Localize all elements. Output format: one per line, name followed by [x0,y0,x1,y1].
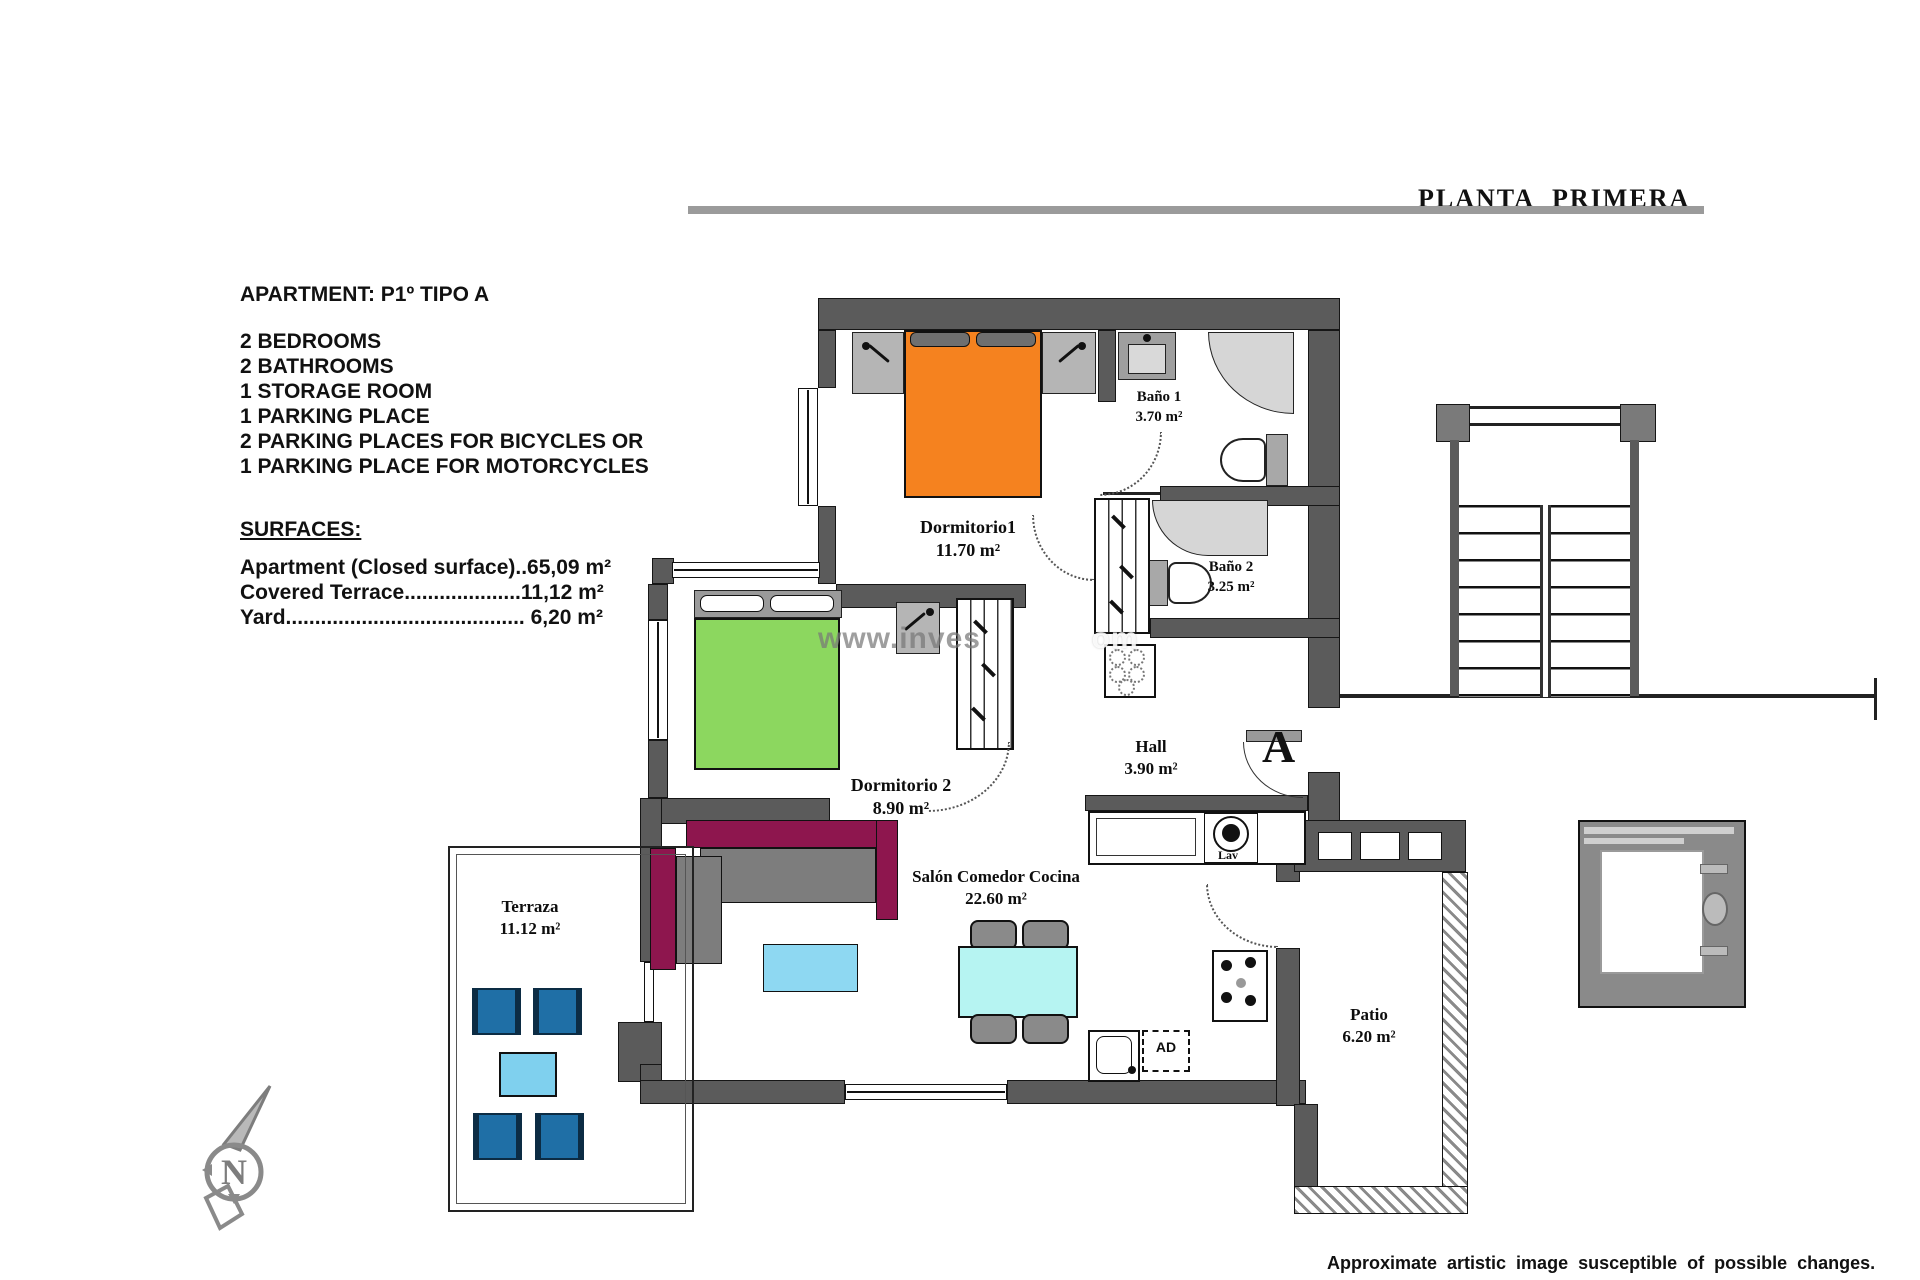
room-area: 8.90 m² [873,798,929,818]
watermark-left: www.inves [818,622,981,655]
surface-item: Apartment (Closed surface)..65,09 m² [240,556,611,581]
room-label-patio: Patio 6.20 m² [1342,1004,1395,1048]
feature-item: 2 BEDROOMS [240,330,649,355]
feature-item: 2 BATHROOMS [240,355,649,380]
room-name: Baño 1 [1137,389,1182,405]
wall-segment [1007,1080,1306,1104]
toilet-tank [1266,434,1288,486]
disclaimer-text: Approximate artistic image susceptible o… [1327,1253,1875,1274]
wall-segment [648,740,668,798]
wall-segment [1294,1104,1318,1188]
toilet-bowl [1168,562,1212,604]
storage-contents [1118,679,1135,696]
surface-item: Yard....................................… [240,606,611,631]
sofa-arm [876,820,898,920]
terrace-chair [472,988,521,1035]
pillow [976,332,1036,347]
stair-flight [1459,505,1540,697]
stove-center [1236,978,1246,988]
coffee-table [763,944,858,992]
wall-segment [652,558,674,584]
wall-segment [1276,948,1300,1106]
ad-label: AD [1156,1038,1176,1056]
wall-segment [818,506,836,584]
lamp-icon [926,608,934,616]
counter-inner-line [1096,818,1196,856]
room-label-salon: Salón Comedor Cocina 22.60 m² [912,866,1080,910]
surface-item: Covered Terrace....................11,12… [240,581,611,606]
stair-divider [1540,505,1551,697]
surfaces-list: Apartment (Closed surface)..65,09 m² Cov… [240,556,611,631]
elevator-cab [1600,850,1704,974]
room-name: Salón Comedor Cocina [912,867,1080,886]
toilet-bowl [1220,438,1266,482]
door-arc-patio [1206,884,1278,948]
wall-segment [1085,795,1308,811]
window-mullion [847,1091,1005,1093]
room-name: Patio [1350,1005,1388,1024]
stair-column [1620,404,1656,442]
room-name: Terraza [502,897,559,916]
feature-item: 1 PARKING PLACE FOR MOTORCYCLES [240,455,649,480]
wardrobe [956,598,1014,750]
faucet-icon [1128,1066,1136,1074]
terrace-table [499,1052,557,1097]
wall-segment [818,330,836,388]
room-name: Dormitorio1 [920,517,1016,537]
surfaces-heading: SURFACES: [240,518,361,543]
wall-segment [1098,330,1116,402]
lav-label: Lav [1218,848,1238,864]
room-label-hall: Hall 3.90 m² [1124,736,1177,780]
window-mullion [674,569,818,571]
feature-item: 2 PARKING PLACES FOR BICYCLES OR [240,430,649,455]
window-mullion [657,622,659,738]
sofa-seat [700,848,876,903]
room-name: Dormitorio 2 [851,775,951,795]
room-area: 22.60 m² [965,889,1027,908]
stair-landing-line [1470,423,1620,426]
terrace-chair [473,1113,522,1160]
patio-boundary-hatch [1294,1186,1468,1214]
patio-boundary-hatch [1442,872,1468,1188]
room-area: 11.12 m² [500,919,561,938]
elevator-rail [1584,838,1684,844]
patio-vent-opening [1408,832,1442,860]
room-label-dormitorio1: Dormitorio1 11.70 m² [920,516,1016,563]
terrace-chair [535,1113,584,1160]
floor-plan-canvas: PLANTA PRIMERA APARTMENT: P1º TIPO A 2 B… [0,0,1920,1280]
pillow [770,595,834,612]
washing-machine-drum-inner [1222,824,1240,842]
window-mullion [807,390,809,504]
room-area: 6.20 m² [1342,1027,1395,1046]
wall-segment [1150,618,1340,638]
stove-burner [1245,995,1256,1006]
dining-table [958,946,1078,1018]
site-line-tick [1874,678,1877,720]
faucet-icon [1143,334,1151,342]
north-compass-icon: N [182,1078,302,1238]
apartment-type-label: APARTMENT: P1º TIPO A [240,283,489,308]
door-arc-dorm1 [1032,515,1094,581]
toilet-tank [1148,560,1168,606]
terrace-chair [533,988,582,1035]
feature-list: 2 BEDROOMS 2 BATHROOMS 1 STORAGE ROOM 1 … [240,330,649,480]
room-label-bano1: Baño 1 3.70 m² [1136,388,1183,427]
feature-item: 1 STORAGE ROOM [240,380,649,405]
bed-double [904,330,1042,498]
stair-flight [1551,505,1630,697]
feature-item: 1 PARKING PLACE [240,405,649,430]
dining-chair [970,1014,1017,1044]
room-label-dormitorio2: Dormitorio 2 8.90 m² [851,774,951,821]
pillow [910,332,970,347]
sofa-back [686,820,898,848]
dining-chair [1022,1014,1069,1044]
wall-segment [1308,330,1340,708]
kitchen-sink-basin [1096,1036,1132,1074]
room-label-bano2: Baño 2 3.25 m² [1208,558,1255,597]
watermark: www.inves om [818,622,1139,656]
stair-rail [1450,440,1459,696]
stove-burner [1245,957,1256,968]
room-name: Baño 2 [1209,559,1254,575]
wall-segment [648,584,668,620]
elevator-mechanism [1700,864,1728,874]
stair-column [1436,404,1470,442]
elevator-mechanism [1702,892,1728,926]
elevator-rail [1584,827,1734,834]
shower-tray [1152,500,1268,556]
room-area: 3.70 m² [1136,409,1183,425]
stair-rail [1630,440,1639,696]
pillow [700,595,764,612]
nightstand [1042,332,1096,394]
patio-vent-opening [1360,832,1400,860]
room-label-terraza: Terraza 11.12 m² [500,896,561,940]
room-area: 3.25 m² [1208,579,1255,595]
door-arc-bath1 [1100,432,1162,496]
wall-segment [818,298,1340,330]
nightstand [852,332,904,394]
stair-landing-line [1470,406,1620,409]
shower-tray [1208,332,1294,414]
site-line-top [688,206,1704,214]
room-area: 11.70 m² [936,540,1000,560]
stove-burner [1221,960,1232,971]
section-marker-a: A [1262,720,1295,773]
room-name: Hall [1135,737,1166,756]
watermark-right: om [1092,622,1139,655]
room-area: 3.90 m² [1124,759,1177,778]
elevator-mechanism [1700,946,1728,956]
patio-vent-opening [1318,832,1352,860]
stove-burner [1221,992,1232,1003]
sink-basin [1128,344,1166,374]
